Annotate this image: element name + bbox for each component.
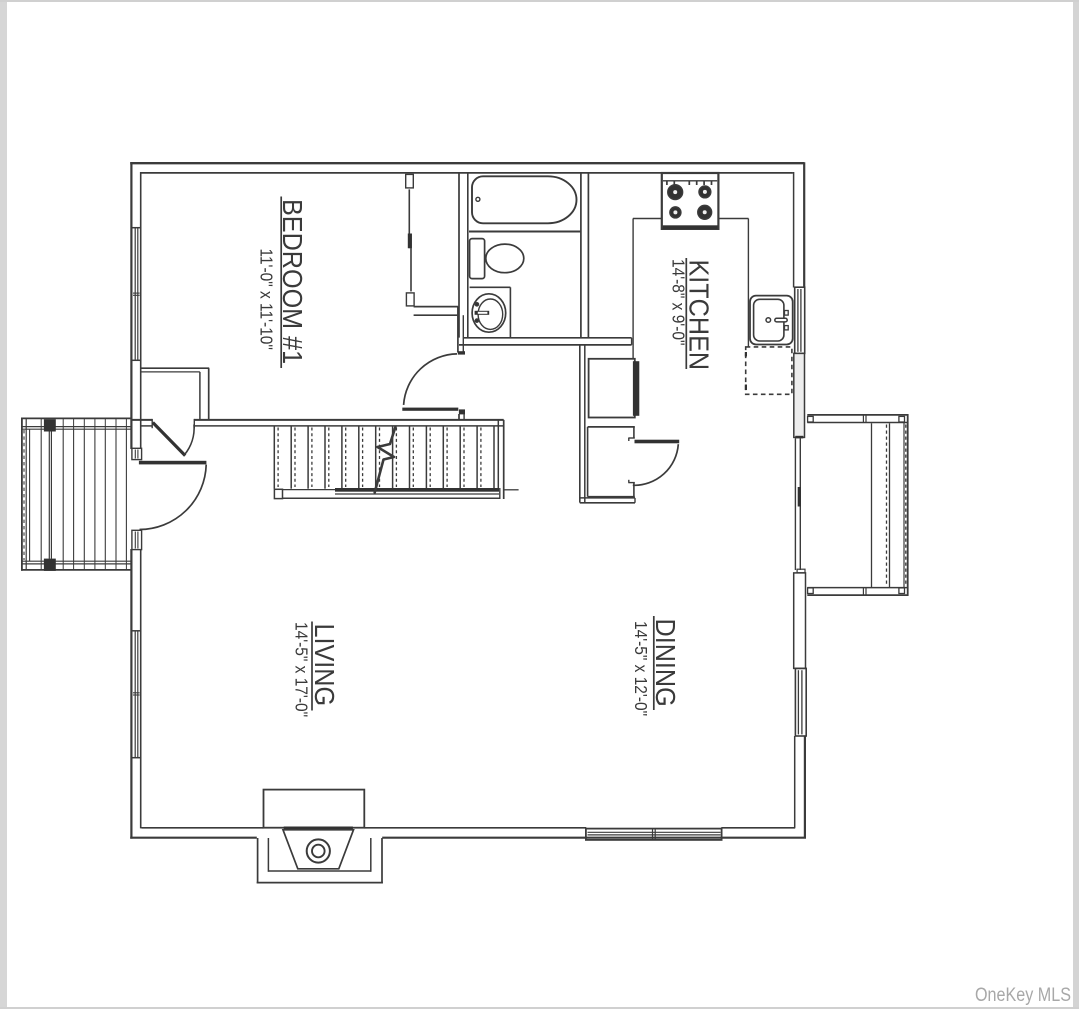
svg-text:OneKey MLS: OneKey MLS	[975, 984, 1071, 1006]
svg-text:14'-5" x 12'-0": 14'-5" x 12'-0"	[631, 621, 651, 716]
svg-text:14'-5" x 17'-0": 14'-5" x 17'-0"	[291, 622, 311, 717]
svg-text:LIVING: LIVING	[309, 624, 341, 707]
svg-text:11'-0" x 11'-10": 11'-0" x 11'-10"	[256, 249, 276, 350]
